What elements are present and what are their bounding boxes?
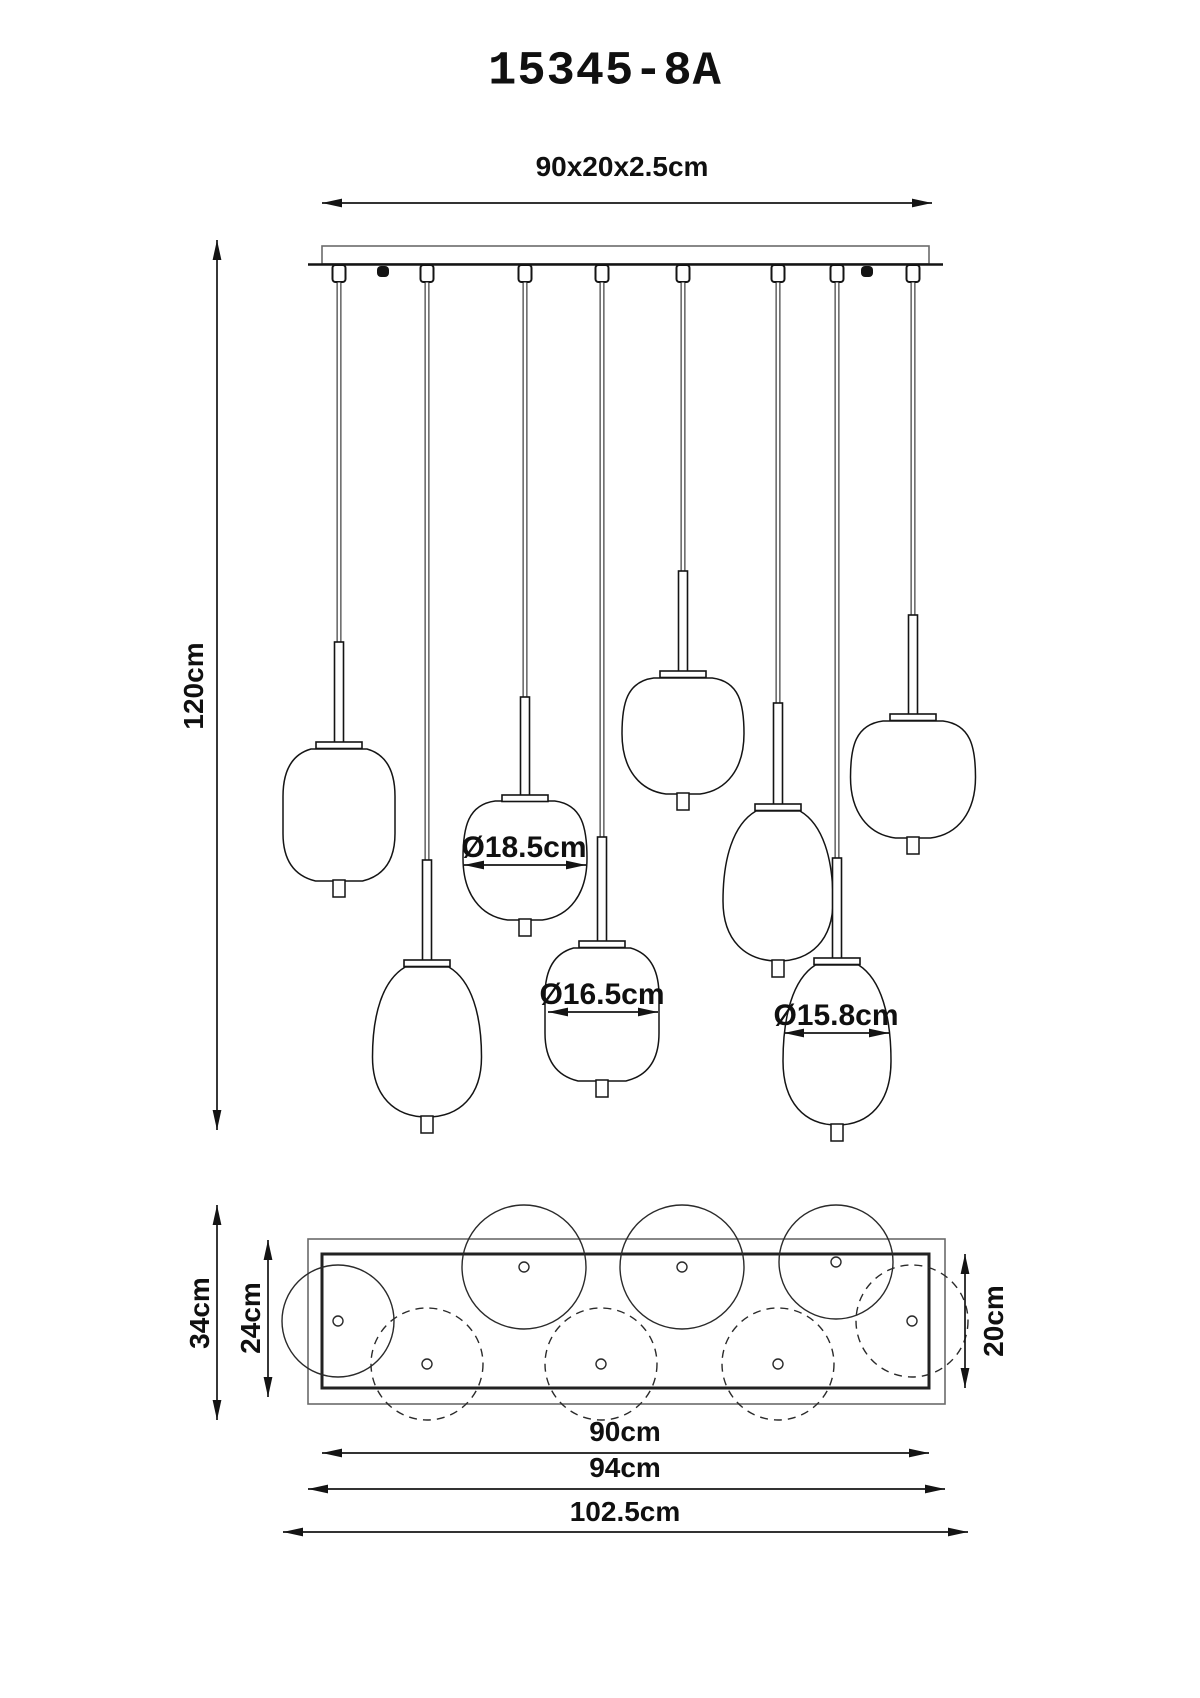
mounting-screw (377, 266, 389, 277)
plan-outer-width-label: 94cm (589, 1454, 661, 1482)
shade-cap (316, 742, 362, 749)
stem-rod (423, 860, 432, 962)
shade-cap (404, 960, 450, 967)
shade-cap (502, 795, 548, 802)
plan-shade-center-mark (422, 1359, 432, 1369)
canopy-size-label: 90x20x2.5cm (536, 153, 709, 181)
pendant-6 (723, 265, 833, 977)
glass-shade (851, 721, 976, 838)
pendant-7 (851, 265, 976, 854)
plan-inner-depth-label: 20cm (980, 1285, 1008, 1357)
suspension-cord (425, 282, 429, 860)
shade-cap (579, 941, 625, 948)
shade-nipple (907, 837, 919, 854)
suspension-cord (523, 282, 527, 697)
shade-cap (814, 958, 860, 965)
page-title: 15345-8A (488, 49, 722, 96)
shade-cap (660, 671, 706, 678)
plan-shade-center-mark (773, 1359, 783, 1369)
ceiling-bar (308, 246, 943, 277)
stem-rod (335, 642, 344, 744)
shade-nipple (772, 960, 784, 977)
stem-rod (598, 837, 607, 943)
shade-nipple (333, 880, 345, 897)
canopy-width-dimension (322, 199, 932, 208)
plan-shade-circle (722, 1308, 834, 1420)
plan-view (282, 1205, 968, 1420)
shade-nipple (677, 793, 689, 810)
cord-grip (677, 265, 690, 282)
shade-cap (890, 714, 936, 721)
shade-cap (755, 804, 801, 811)
pendant-1 (283, 265, 395, 897)
plan-shade-circle (545, 1308, 657, 1420)
suspension-cord (835, 282, 839, 858)
shade-nipple (519, 919, 531, 936)
technical-drawing-page: 15345-8A 90x20x2.5cm 120cm Ø18.5cm Ø16.5… (0, 0, 1200, 1698)
cord-grip (596, 265, 609, 282)
plan-shade-center-mark (333, 1316, 343, 1326)
cord-grip (421, 265, 434, 282)
shade-diameter-small-label: Ø15.8cm (773, 1001, 898, 1031)
plan-total-depth-label: 34cm (186, 1277, 214, 1349)
plan-shade-center-mark (907, 1316, 917, 1326)
plan-shade-center-mark (596, 1359, 606, 1369)
stem-rod (679, 571, 688, 673)
shade-nipple (831, 1124, 843, 1141)
cord-grip (333, 265, 346, 282)
drop-length-dimension (213, 240, 222, 1130)
glass-shade (373, 967, 482, 1117)
plan-total-width-dimension (283, 1528, 968, 1537)
shade-nipple (596, 1080, 608, 1097)
glass-shade (622, 678, 744, 794)
stem-rod (521, 697, 530, 797)
stem-rod (774, 703, 783, 806)
plan-inner-plate (322, 1254, 929, 1388)
cord-grip (831, 265, 844, 282)
plan-shade-center-mark (831, 1257, 841, 1267)
suspension-cord (681, 282, 685, 571)
drop-length-label: 120cm (180, 642, 208, 729)
glass-shade (283, 749, 395, 881)
shade-diameter-large-label: Ø18.5cm (461, 833, 586, 863)
plan-shade-circle (371, 1308, 483, 1420)
shade-diameter-medium-label: Ø16.5cm (539, 980, 664, 1010)
plan-outer-plate (308, 1239, 945, 1404)
pendant-2 (373, 265, 482, 1133)
suspension-cord (911, 282, 915, 615)
cord-grip (519, 265, 532, 282)
shade-nipple (421, 1116, 433, 1133)
mounting-screw (861, 266, 873, 277)
cord-grip (772, 265, 785, 282)
suspension-cord (600, 282, 604, 837)
suspension-cord (776, 282, 780, 703)
plan-shade-circle (282, 1265, 394, 1377)
plan-shade-circle (856, 1265, 968, 1377)
cord-grip (907, 265, 920, 282)
stem-rod (833, 858, 842, 960)
plan-outer-width-dimension (308, 1485, 945, 1494)
plan-shade-center-mark (519, 1262, 529, 1272)
plan-shade-circle (779, 1205, 893, 1319)
pendant-5 (622, 265, 744, 810)
stem-rod (909, 615, 918, 716)
plan-inner-width-label: 90cm (589, 1418, 661, 1446)
plan-shade-center-mark (677, 1262, 687, 1272)
glass-shade (783, 965, 891, 1125)
plan-outer-depth-label: 24cm (237, 1282, 265, 1354)
glass-shade (723, 811, 833, 961)
suspension-cord (337, 282, 341, 642)
plan-shade-circle (462, 1205, 586, 1329)
plan-shade-circle (620, 1205, 744, 1329)
plan-total-width-label: 102.5cm (570, 1498, 681, 1526)
